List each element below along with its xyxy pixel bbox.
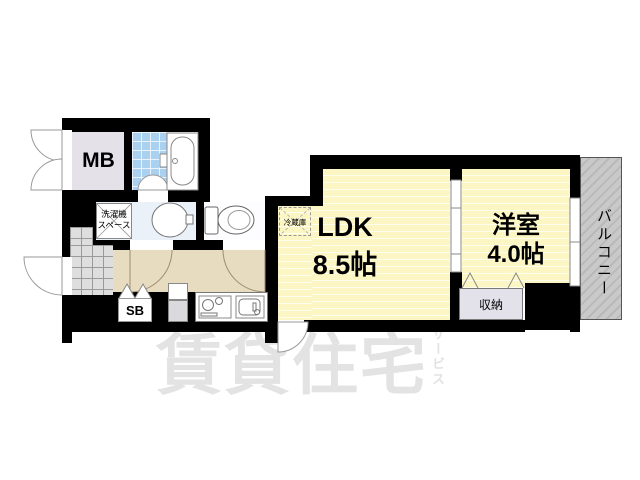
closet-folding-door-icon — [462, 273, 478, 288]
ldk-door-arc — [278, 322, 308, 352]
western-room-size-label: 4.0帖 — [462, 234, 570, 269]
toilet-door-arc — [223, 250, 265, 292]
ldk-name-label: LDK — [280, 212, 410, 243]
mb-door-arc — [31, 159, 62, 190]
faucet-icon — [186, 215, 193, 224]
bathtub-icon — [167, 133, 198, 190]
ldk-size-label: 8.5帖 — [280, 243, 410, 282]
washroom-door-arc — [130, 250, 172, 292]
washer-space-label-line2: スペース — [96, 220, 132, 231]
mb-door-arc — [31, 130, 62, 161]
toilet-bowl-icon — [218, 206, 254, 234]
closet-folding-door-icon — [508, 273, 524, 288]
toilet-tank-icon — [205, 207, 218, 234]
shoebox-folding-door-icon — [119, 284, 151, 298]
balcony-label: バルコニー — [590, 183, 614, 323]
entrance-door-arc — [24, 257, 62, 295]
soap-shelf-icon — [160, 154, 167, 167]
closet-label: 収納 — [459, 296, 523, 313]
mb-label: MB — [72, 149, 125, 173]
washer-space-label: 洗濯機 スペース — [96, 209, 132, 231]
floorplan: 賃貸住宅 サービス — [0, 0, 640, 480]
bath-door-arc — [138, 175, 168, 190]
sliding-door-icon — [451, 180, 461, 272]
washbasin-icon — [152, 203, 188, 237]
stove-icon — [199, 296, 231, 318]
shoebox-label: SB — [118, 303, 152, 318]
washer-space-label-line1: 洗濯機 — [96, 209, 132, 220]
